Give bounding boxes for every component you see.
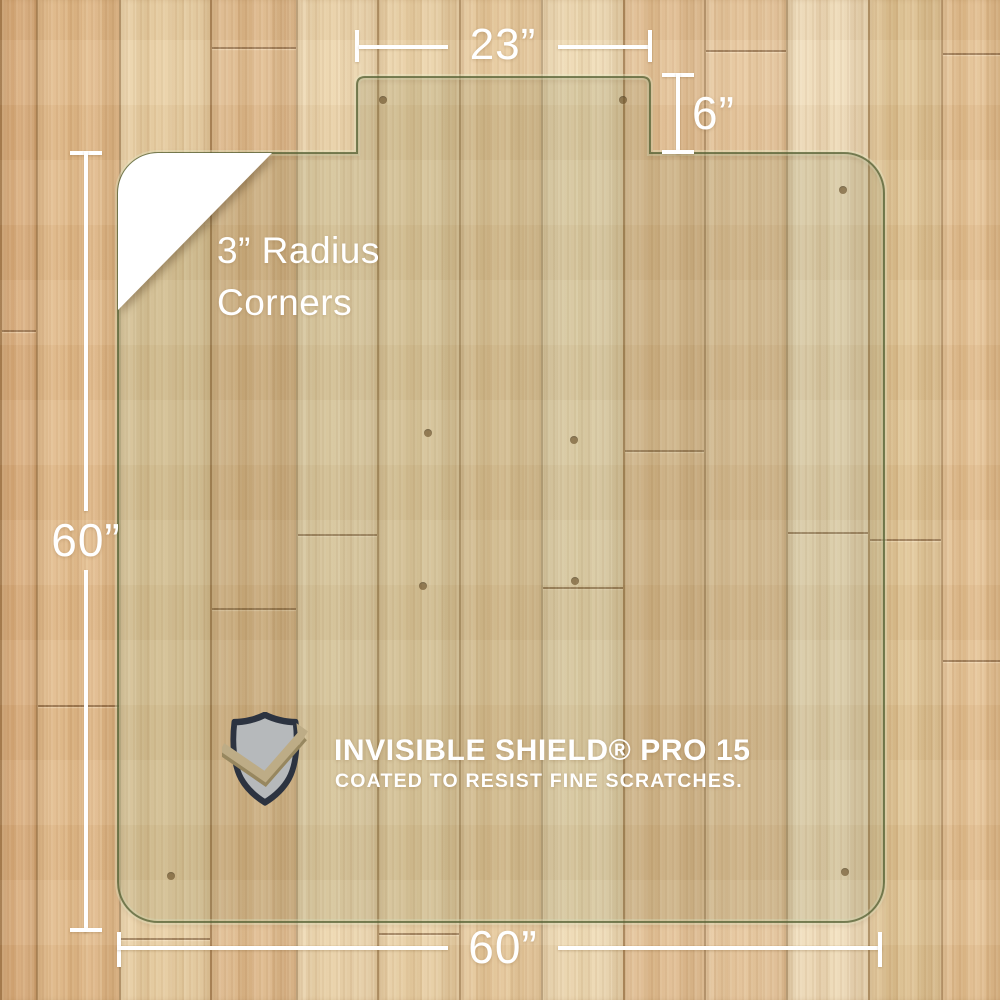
plank-joint [943,53,1000,55]
wood-knot-dot [571,577,579,585]
shield-check-icon [222,712,308,808]
corner-radius-note-line2: Corners [217,277,380,329]
wood-floor [0,0,1000,1000]
floor-plank [0,0,36,1000]
wood-knot-dot [379,96,387,104]
badge-title: INVISIBLE SHIELD® PRO 15 [334,734,751,768]
plank-joint [788,532,868,534]
plank-joint [38,705,119,707]
dim-60-side-line-bottom [84,570,88,932]
plank-joint [870,539,941,541]
floor-plank [704,0,786,1000]
corner-radius-note-line1: 3” Radius [217,225,380,277]
dim-6-tick-bottom [662,150,694,154]
brand-badge: INVISIBLE SHIELD® PRO 15 COATED TO RESIS… [222,710,802,820]
wood-knot-dot [424,429,432,437]
dim-60-side-label: 60” [51,513,120,567]
floor-plank [786,0,868,1000]
dim-60-bottom-tick-right [878,932,882,967]
plank-joint [121,938,210,940]
corner-radius-note: 3” Radius Corners [217,225,380,329]
plank-joint [706,50,786,52]
floor-plank [119,0,210,1000]
plank-joint [625,450,704,452]
floor-plank [459,0,541,1000]
plank-joint [212,47,296,49]
plank-joint [2,330,36,332]
wood-knot-dot [839,186,847,194]
plank-joint [943,660,1000,662]
dim-60-bottom-label: 60” [468,920,537,974]
wood-knot-dot [167,872,175,880]
floor-plank [541,0,623,1000]
wood-knot-dot [570,436,578,444]
badge-subtitle: COATED TO RESIST FINE SCRATCHES. [335,770,743,793]
floor-plank [941,0,1000,1000]
dim-60-side-tick-bottom [70,928,102,932]
plank-joint [543,587,623,589]
plank-joint [212,608,296,610]
dim-60-bottom-line-left [117,946,448,950]
floor-plank [36,0,119,1000]
product-image: 23” 6” 60” 60” 3” Radius Corners INVISIB… [0,0,1000,1000]
dim-60-side-line-top [84,151,88,511]
plank-joint [379,933,459,935]
dim-6-label: 6” [692,86,735,140]
plank-joint [298,534,377,536]
floor-plank [377,0,459,1000]
floor-plank [210,0,296,1000]
dim-23-label: 23” [470,20,537,70]
floor-plank [296,0,377,1000]
dim-23-line-left [359,45,448,49]
floor-plank [868,0,941,1000]
dim-23-tick-right [648,30,652,62]
wood-knot-dot [841,868,849,876]
dim-60-bottom-line-right [558,946,882,950]
dim-23-line-right [558,45,648,49]
wood-knot-dot [619,96,627,104]
wood-knot-dot [419,582,427,590]
dim-6-line [676,73,680,154]
